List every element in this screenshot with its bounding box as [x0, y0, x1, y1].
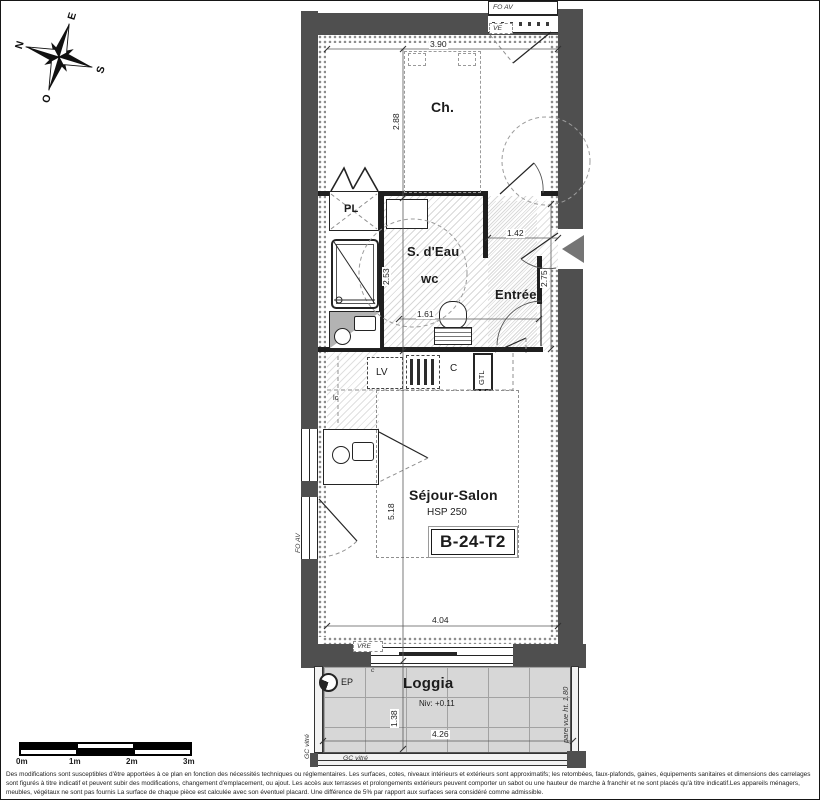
cupboard-label: C [450, 363, 457, 374]
disclaimer-text: Des modifications sont susceptibles d'êt… [6, 771, 816, 798]
insulation-strip-right-upper [550, 35, 558, 229]
sink-bowl [332, 446, 350, 464]
loggia-post-right [567, 751, 586, 768]
compass-east-label: E [66, 11, 80, 21]
counter-label: lc [333, 393, 338, 402]
compass-south-label: S [94, 65, 108, 75]
small-c-label: c [371, 667, 374, 674]
dim-loggia-width: 4.26 [431, 730, 450, 739]
exterior-wall-right [558, 9, 583, 666]
top-window-label: FO AV [493, 4, 513, 11]
loggia-post-left [310, 753, 318, 767]
technical-duct-label: GTL [477, 370, 486, 385]
washbasin-fitting [354, 316, 376, 331]
entry-label: Entrée [495, 287, 537, 302]
compass-rose: N E S O [9, 7, 109, 107]
partition-entry-left [483, 196, 488, 258]
entry-door-arrow [562, 235, 584, 263]
ve-label-box: VE [489, 23, 513, 34]
vre-label: VRE [357, 643, 371, 650]
kitchen-window [301, 429, 318, 481]
appliance-grille [410, 359, 436, 385]
kitchen-sink-unit [323, 429, 379, 485]
scale-bar: 0m 1m 2m 3m [19, 742, 199, 768]
bay-midline [371, 655, 513, 656]
bedroom-label: Ch. [431, 99, 454, 115]
toilet-tank [434, 327, 472, 345]
rain-pipe-label: EP [341, 677, 353, 687]
partition-bedroom-entry [541, 191, 558, 196]
dim-living-depth: 5.18 [387, 502, 396, 521]
dishwasher-label: LV [376, 367, 388, 378]
loggia-bay-window [371, 647, 513, 664]
bedroom-door-swing [534, 163, 543, 193]
scale-seg [20, 749, 77, 755]
closet-label: PL [344, 203, 358, 215]
vanity-cabinet [386, 199, 428, 229]
compass-west-label: O [40, 93, 54, 104]
dishwasher-box: LV [367, 357, 403, 389]
exterior-wall-bottom-right [513, 644, 586, 668]
scale-seg [77, 749, 134, 755]
dim-entry-width: 1.42 [506, 229, 525, 238]
rain-pipe-symbol [319, 673, 338, 692]
scale-label-3: 3m [183, 757, 195, 766]
loggia-label: Loggia [403, 675, 453, 692]
scale-seg [134, 749, 191, 755]
bed-pillow-right [458, 53, 476, 66]
scale-label-1: 1m [69, 757, 81, 766]
shower [331, 239, 379, 309]
exterior-wall-left [301, 11, 318, 666]
ve-label: VE [493, 25, 502, 32]
dim-bedroom-width: 3.90 [429, 40, 448, 49]
insulation-strip-left [318, 35, 326, 637]
privacy-screen-label: pare vue ht. 1.80 [561, 687, 570, 743]
railing-bottom-label: GC vitré [343, 755, 368, 762]
living-window-midline [309, 497, 310, 559]
unit-id-box: B-24-T2 [431, 529, 515, 555]
wc-label: wc [421, 271, 439, 286]
bathroom-label: S. d'Eau [407, 244, 459, 259]
bay-handle [399, 652, 457, 655]
dim-bathroom-depth: 2.53 [382, 267, 391, 286]
washbasin-unit [329, 311, 381, 349]
loggia-railing-right [571, 666, 579, 753]
washbasin-bowl [334, 328, 351, 345]
living-label: Séjour-Salon [409, 487, 498, 503]
scale-label-2: 2m [126, 757, 138, 766]
loggia-level-label: Niv: +0.11 [419, 699, 455, 708]
scale-bar-frame [19, 742, 192, 756]
left-window-label: FO AV [295, 533, 302, 553]
living-window [301, 497, 318, 559]
bed-pillow-left [408, 53, 426, 66]
top-window-label-box: FO AV [488, 1, 558, 15]
appliance-box [406, 355, 440, 389]
dim-living-width: 4.04 [431, 616, 450, 625]
compass-north-label: N [13, 40, 27, 51]
railing-left-label: GC vitré [304, 734, 311, 759]
sink-drainer [352, 442, 374, 461]
dim-entry-depth: 2.75 [540, 269, 549, 288]
living-ceiling-height: HSP 250 [427, 507, 467, 518]
vre-label-box: VRE [353, 641, 383, 652]
dim-loggia-depth: 1.38 [390, 709, 399, 728]
bed [404, 51, 481, 193]
toilet-bowl [439, 301, 467, 329]
dim-bedroom-depth: 2.88 [392, 112, 401, 131]
floor-plan-page: N E S O FO AV VE VRE [0, 0, 820, 800]
scale-label-0: 0m [16, 757, 28, 766]
bedroom-door-leaf [500, 163, 534, 194]
kitchen-window-midline [309, 429, 310, 481]
dim-bathroom-width: 1.61 [416, 310, 435, 319]
closet-bifold-doors [331, 168, 378, 191]
living-window-swing [322, 541, 357, 557]
insulation-strip-right-lower [550, 269, 558, 637]
